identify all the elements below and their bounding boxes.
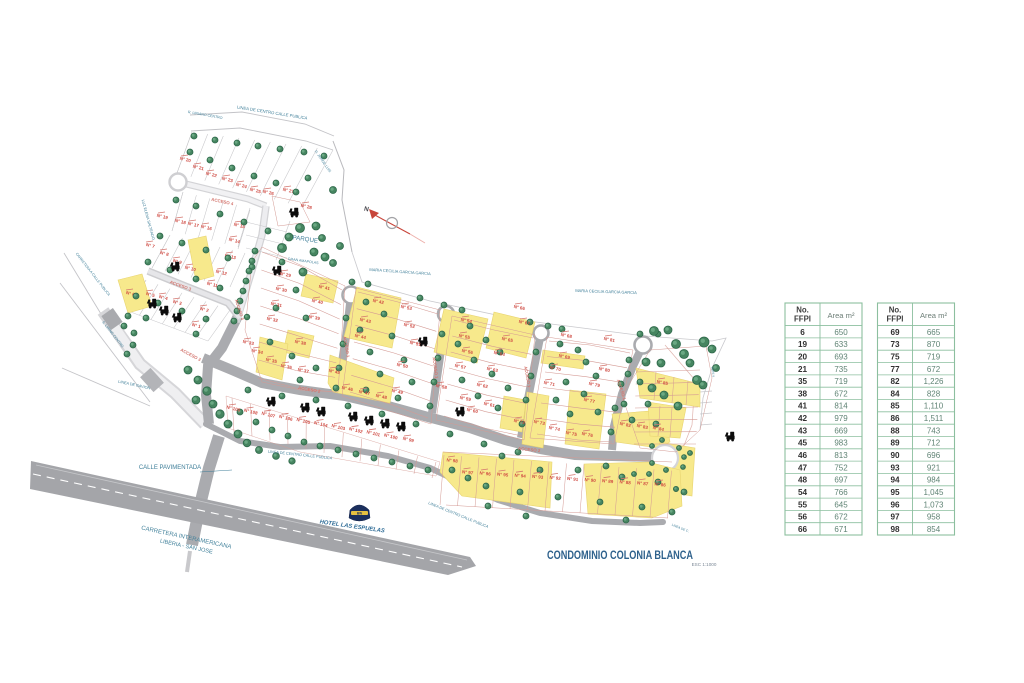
svg-text:697: 697: [834, 476, 848, 485]
svg-text:89: 89: [890, 439, 900, 448]
svg-text:38: 38: [798, 389, 808, 398]
svg-text:69: 69: [890, 328, 900, 337]
svg-text:735: 735: [834, 365, 848, 374]
svg-text:19: 19: [798, 340, 808, 349]
svg-text:814: 814: [834, 402, 848, 411]
svg-text:90: 90: [890, 451, 900, 460]
svg-text:696: 696: [927, 451, 941, 460]
svg-text:1,073: 1,073: [923, 500, 944, 509]
svg-text:984: 984: [927, 476, 941, 485]
svg-text:983: 983: [834, 439, 848, 448]
svg-text:No.: No.: [889, 306, 902, 315]
svg-text:86: 86: [890, 414, 900, 423]
svg-text:645: 645: [834, 500, 848, 509]
svg-text:828: 828: [927, 389, 941, 398]
svg-text:66: 66: [798, 525, 808, 534]
svg-text:921: 921: [927, 463, 941, 472]
svg-text:6: 6: [800, 328, 805, 337]
svg-text:633: 633: [834, 340, 848, 349]
svg-text:20: 20: [798, 352, 808, 361]
svg-text:FFPI: FFPI: [794, 315, 811, 324]
svg-text:650: 650: [834, 328, 848, 337]
svg-text:979: 979: [834, 414, 848, 423]
svg-text:813: 813: [834, 451, 848, 460]
svg-text:854: 854: [927, 525, 941, 534]
svg-text:95: 95: [890, 488, 900, 497]
svg-text:766: 766: [834, 488, 848, 497]
svg-text:35: 35: [798, 377, 808, 386]
svg-text:672: 672: [927, 365, 941, 374]
svg-text:CALLE PAVIMENTADA: CALLE PAVIMENTADA: [139, 465, 201, 471]
svg-text:Area m²: Area m²: [827, 311, 854, 320]
svg-text:94: 94: [890, 476, 900, 485]
svg-text:96: 96: [890, 500, 900, 509]
svg-text:97: 97: [890, 513, 900, 522]
svg-text:719: 719: [834, 377, 848, 386]
svg-text:743: 743: [927, 426, 941, 435]
svg-text:752: 752: [834, 463, 848, 472]
svg-text:48: 48: [798, 476, 808, 485]
svg-text:1,045: 1,045: [923, 488, 944, 497]
svg-text:672: 672: [834, 513, 848, 522]
svg-text:88: 88: [890, 426, 900, 435]
svg-text:93: 93: [890, 463, 900, 472]
svg-text:719: 719: [927, 352, 941, 361]
svg-text:45: 45: [798, 439, 808, 448]
svg-text:75: 75: [890, 352, 900, 361]
svg-text:41: 41: [798, 402, 808, 411]
svg-text:43: 43: [798, 426, 808, 435]
svg-text:665: 665: [927, 328, 941, 337]
svg-text:693: 693: [834, 352, 848, 361]
svg-text:55: 55: [798, 500, 808, 509]
svg-text:82: 82: [890, 377, 900, 386]
svg-text:73: 73: [890, 340, 900, 349]
svg-text:47: 47: [798, 463, 808, 472]
svg-text:46: 46: [798, 451, 808, 460]
svg-text:77: 77: [890, 365, 900, 374]
svg-text:No.: No.: [796, 306, 809, 315]
svg-text:672: 672: [834, 389, 848, 398]
svg-text:84: 84: [890, 389, 900, 398]
svg-text:56: 56: [798, 513, 808, 522]
svg-text:98: 98: [890, 525, 900, 534]
svg-text:BW: BW: [357, 511, 362, 515]
svg-text:85: 85: [890, 402, 900, 411]
svg-text:21: 21: [798, 365, 808, 374]
svg-text:870: 870: [927, 340, 941, 349]
svg-text:54: 54: [798, 488, 808, 497]
svg-text:ESC 1:1000: ESC 1:1000: [692, 562, 717, 567]
svg-text:FFPI: FFPI: [887, 315, 904, 324]
svg-text:712: 712: [927, 439, 941, 448]
svg-text:1,110: 1,110: [924, 402, 944, 411]
svg-text:669: 669: [834, 426, 848, 435]
svg-text:671: 671: [834, 525, 848, 534]
svg-text:1,226: 1,226: [923, 377, 944, 386]
svg-text:1,511: 1,511: [924, 414, 944, 423]
svg-text:42: 42: [798, 414, 808, 423]
svg-text:Area m²: Area m²: [920, 311, 947, 320]
svg-text:CONDOMINIO COLONIA BLANCA: CONDOMINIO COLONIA BLANCA: [547, 548, 693, 562]
svg-text:958: 958: [927, 513, 941, 522]
